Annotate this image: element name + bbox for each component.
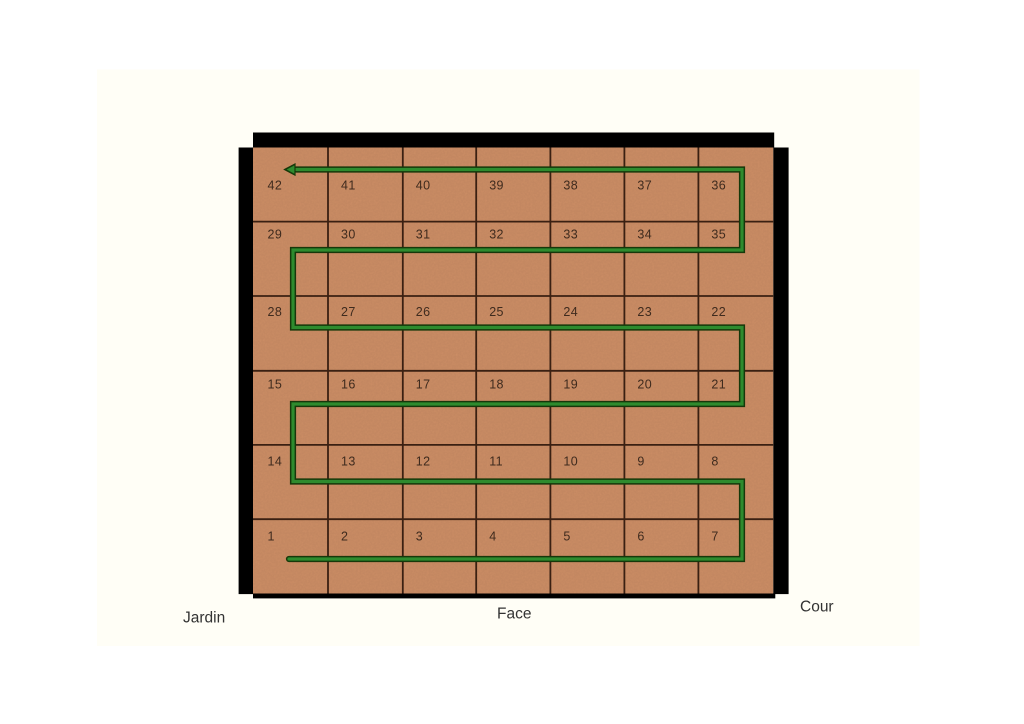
svg-text:7: 7 [711, 530, 718, 544]
svg-text:19: 19 [563, 378, 578, 392]
svg-text:32: 32 [489, 228, 504, 242]
svg-text:16: 16 [341, 378, 356, 392]
svg-text:2: 2 [341, 530, 348, 544]
svg-text:35: 35 [711, 228, 726, 242]
svg-text:15: 15 [268, 378, 283, 392]
svg-text:40: 40 [416, 179, 431, 193]
svg-text:29: 29 [268, 228, 283, 242]
svg-text:Jardin: Jardin [183, 610, 225, 627]
svg-text:12: 12 [416, 455, 431, 469]
svg-text:23: 23 [637, 305, 652, 319]
svg-text:6: 6 [637, 530, 644, 544]
svg-text:33: 33 [563, 228, 578, 242]
svg-text:3: 3 [416, 530, 423, 544]
svg-text:41: 41 [341, 179, 356, 193]
svg-text:31: 31 [416, 228, 431, 242]
svg-text:13: 13 [341, 455, 356, 469]
svg-text:4: 4 [489, 530, 496, 544]
svg-text:18: 18 [489, 378, 504, 392]
svg-text:Cour: Cour [800, 599, 834, 616]
svg-text:39: 39 [489, 179, 504, 193]
svg-text:22: 22 [711, 305, 726, 319]
svg-text:25: 25 [489, 305, 504, 319]
svg-text:37: 37 [637, 179, 652, 193]
svg-text:8: 8 [711, 455, 718, 469]
svg-text:17: 17 [416, 378, 431, 392]
svg-text:10: 10 [563, 455, 578, 469]
svg-text:Face: Face [497, 606, 531, 623]
svg-text:21: 21 [711, 378, 726, 392]
svg-text:38: 38 [563, 179, 578, 193]
svg-text:9: 9 [637, 455, 644, 469]
svg-text:30: 30 [341, 228, 356, 242]
svg-text:5: 5 [563, 530, 570, 544]
svg-text:36: 36 [711, 179, 726, 193]
svg-text:20: 20 [637, 378, 652, 392]
svg-text:26: 26 [416, 305, 431, 319]
svg-text:14: 14 [268, 455, 283, 469]
svg-text:34: 34 [637, 228, 652, 242]
svg-text:11: 11 [489, 455, 503, 469]
svg-text:28: 28 [268, 305, 283, 319]
svg-text:27: 27 [341, 305, 356, 319]
svg-text:1: 1 [268, 530, 275, 544]
svg-text:42: 42 [268, 179, 283, 193]
svg-text:24: 24 [563, 305, 578, 319]
